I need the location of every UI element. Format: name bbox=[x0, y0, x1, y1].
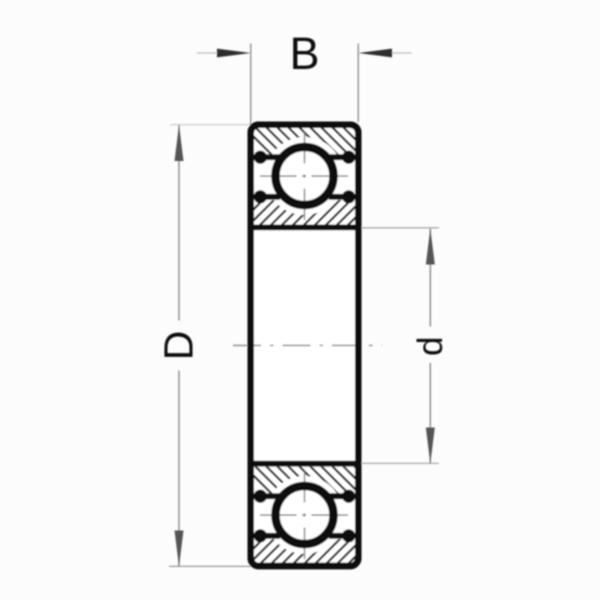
svg-text:D: D bbox=[155, 331, 201, 361]
svg-text:B: B bbox=[289, 28, 319, 79]
svg-text:d: d bbox=[411, 337, 450, 356]
